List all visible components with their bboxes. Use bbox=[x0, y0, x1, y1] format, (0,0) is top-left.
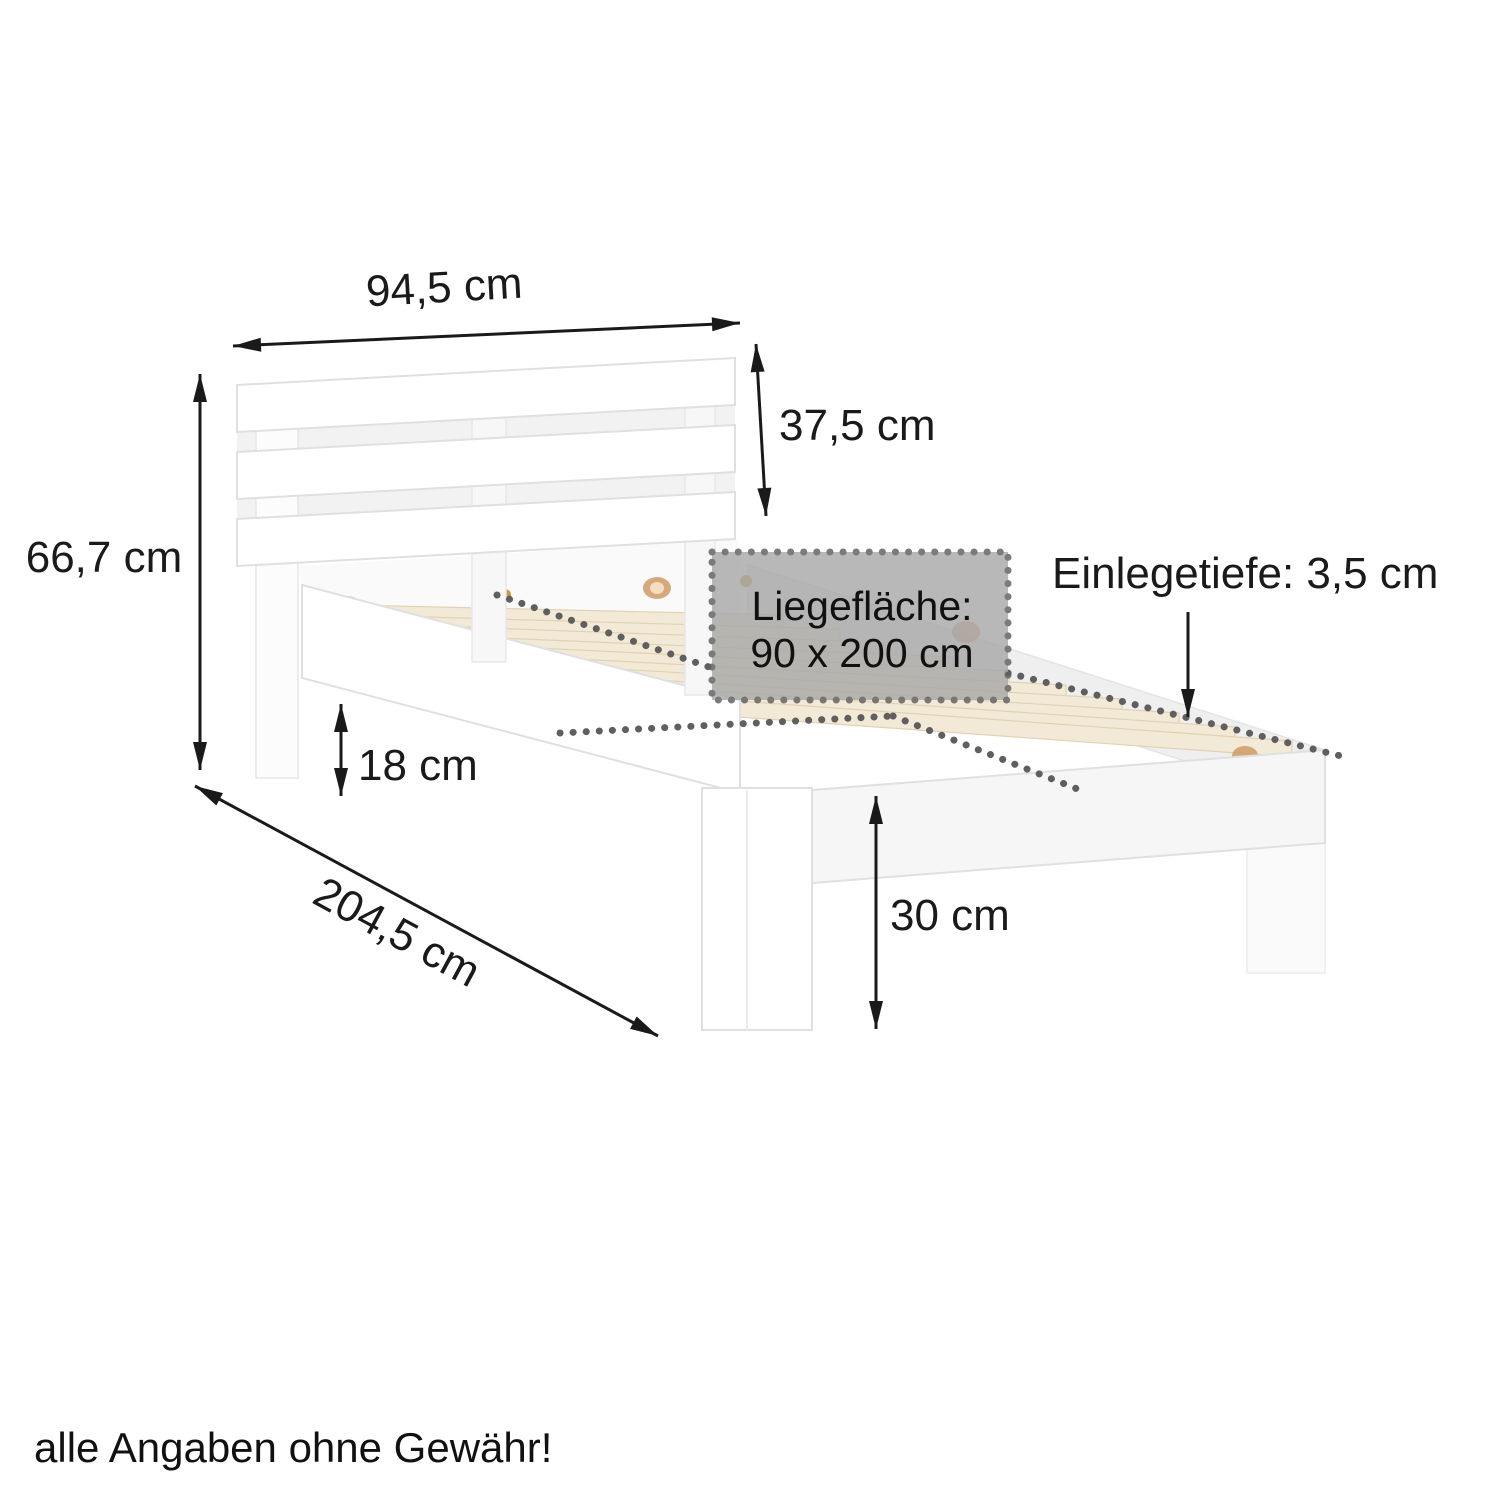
underbed-clearance-label: 18 cm bbox=[358, 741, 478, 790]
headboard-height-label: 37,5 cm bbox=[779, 401, 936, 450]
headboard-width-label: 94,5 cm bbox=[365, 259, 524, 317]
disclaimer-text: alle Angaben ohne Gewähr! bbox=[34, 1424, 552, 1471]
diagram-canvas: Liegefläche: 90 x 200 cm 94,5 cm 37,5 cm… bbox=[0, 0, 1500, 1500]
frame-length-arrow bbox=[195, 786, 658, 1036]
foot-height-label: 30 cm bbox=[890, 891, 1010, 940]
bed-dimension-diagram: Liegefläche: 90 x 200 cm 94,5 cm 37,5 cm… bbox=[0, 0, 1500, 1500]
lying-surface-title: Liegefläche: bbox=[751, 583, 972, 629]
total-height-label: 66,7 cm bbox=[26, 533, 183, 582]
near-foot-leg bbox=[702, 788, 812, 1030]
lying-surface-box: Liegefläche: 90 x 200 cm bbox=[712, 552, 1008, 700]
dowel-hole bbox=[650, 582, 664, 594]
headboard-width-arrow bbox=[233, 323, 740, 346]
lying-surface-size: 90 x 200 cm bbox=[750, 630, 973, 676]
insert-depth-label: Einlegetiefe: 3,5 cm bbox=[1052, 549, 1438, 598]
frame-length-label: 204,5 cm bbox=[306, 868, 489, 997]
headboard-height-arrow bbox=[756, 344, 766, 516]
